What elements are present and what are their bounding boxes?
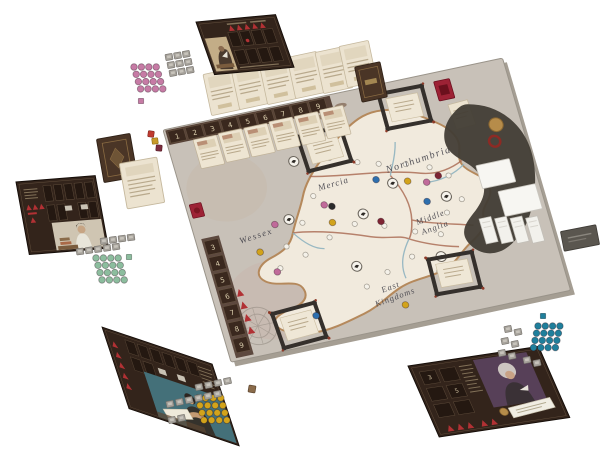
disc-supply-pink[interactable]	[131, 64, 166, 104]
die-yellow[interactable]	[152, 138, 159, 145]
portrait-monk	[52, 219, 107, 250]
player-board-bottom-right[interactable]: 3 5	[408, 346, 570, 437]
player-cube-pink[interactable]	[138, 98, 143, 103]
player-cube-green[interactable]	[126, 254, 131, 259]
tiles-pink[interactable]	[165, 50, 194, 76]
dice[interactable]	[148, 131, 163, 152]
die-brown[interactable]	[248, 385, 256, 393]
player-board-bottom-left[interactable]	[102, 327, 239, 446]
board-game-photo: Northumbria Mercia Wessex Middle Anglia …	[0, 0, 610, 450]
disc-supply-teal[interactable]	[530, 313, 563, 351]
player-board-top-left[interactable]	[196, 15, 294, 75]
player-cube-teal[interactable]	[540, 313, 545, 318]
player-board-left[interactable]	[16, 176, 109, 255]
die-red[interactable]	[148, 131, 155, 138]
slot-tile[interactable]	[65, 205, 73, 210]
slot-tile[interactable]	[80, 204, 88, 209]
event-card[interactable]	[119, 157, 164, 209]
disc-supply-green[interactable]	[93, 254, 132, 283]
die-maroon[interactable]	[156, 145, 163, 152]
tabletop-scene: Northumbria Mercia Wessex Middle Anglia …	[0, 0, 610, 450]
victory-tile[interactable]	[560, 225, 599, 252]
